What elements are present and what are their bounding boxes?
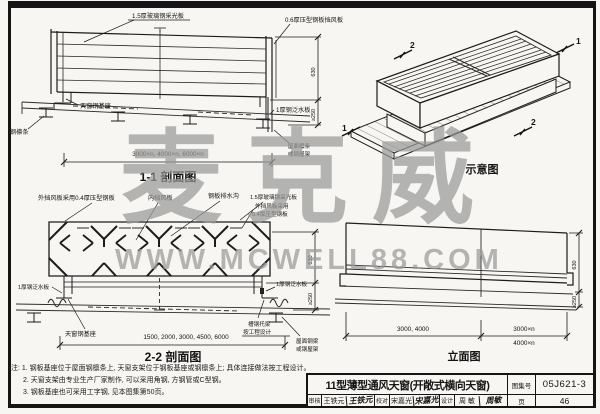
s22-label-joist-2: 按工程设计 (243, 328, 271, 336)
s11-label-flashing: 1厚钢泛水板 (276, 106, 310, 114)
s22-label-joist-1: 槽钢托梁 (248, 320, 271, 328)
s11-panels (57, 28, 276, 99)
review-name: 王铁元 (321, 395, 346, 406)
design-label: 设计 (439, 395, 454, 406)
note-line-1: 注: 1. 钢板基座位于屋面钢檩条上, 天窗支架位于钢板基座或钢檩条上; 具体连… (11, 363, 323, 375)
elev-dim-left-span: 3000, 4000 (397, 326, 429, 333)
elevation-drawing: 630 ≥250 3000, 4000 3000×n 4000×n 立面图 (333, 210, 598, 365)
s11-dim-height: 630 (311, 67, 317, 76)
page-number: 46 (535, 395, 593, 406)
s22-label-inner-board: 内挡风板 (148, 194, 173, 202)
s11-skylight-box (51, 29, 272, 99)
section-2-2-drawing: 外挡风板采用0.4厚压型钢板 内挡风板 钢板排水沟 1.5厚玻璃钢采光板 外挡风… (8, 186, 338, 366)
review-signature: 王铁元 (346, 394, 375, 407)
s11-label-base: 天窗钢基座 (80, 102, 111, 110)
elev-dim-height: 630 (572, 260, 578, 269)
s22-purlin-ibeams (27, 313, 283, 322)
title-block-row-2: 审核 王铁元 王铁元 校对 宋嘉光 宋嘉光 设计 周 敏 周敏 页 46 (308, 395, 593, 406)
s22-dim-span: 1500, 2000, 3000, 4500, 6000 (143, 334, 229, 341)
s22-label-panel: 1.5厚玻璃钢采光板 (250, 193, 297, 201)
iso-mark-1-bottom: 1 (342, 123, 347, 133)
s11-label-panel: 1.5厚玻璃钢采光板 (132, 12, 184, 20)
iso-mark-2-bottom: 2 (531, 117, 536, 127)
iso-title: 示意图 (465, 162, 499, 176)
s11-title: 1-1 剖面图 (140, 169, 197, 184)
design-signature: 周敏 (479, 394, 508, 407)
check-signature: 宋嘉光 (413, 394, 440, 407)
check-name: 宋嘉光 (389, 395, 413, 406)
elev-dim-curb: ≥250 (572, 296, 578, 308)
s11-dim-curb: ≥250 (311, 109, 317, 121)
atlas-number-label: 图集号 (507, 375, 535, 394)
review-label: 审核 (308, 395, 321, 406)
s11-leaders (28, 20, 290, 143)
drawing-title: 11型薄型通风天窗(开敞式横向天窗) (308, 375, 507, 394)
s22-label-flashing-right: 1厚钢泛水板 (276, 280, 307, 288)
s11-label-roof-2: 或钢屋架 (288, 150, 311, 158)
iso-mark-2-top: 2 (410, 40, 415, 50)
s22-title: 2-2 剖面图 (145, 349, 202, 364)
s22-leaders (52, 201, 300, 336)
s22-label-outer-right-2: 0.4厚压型钢板 (252, 210, 288, 218)
elev-dim-right-span-2: 4000×n (513, 340, 535, 347)
elev-lines (335, 229, 576, 310)
atlas-number-value: 05J621-3 (535, 375, 593, 394)
design-name: 周 敏 (454, 395, 479, 406)
s22-curbs-flashing (48, 276, 288, 307)
s22-gutter-funnels (91, 226, 228, 276)
s22-dim-curb: ≥250 (308, 293, 314, 305)
s11-label-roof-1: 屋面檩条 (288, 142, 311, 150)
page-label: 页 (507, 395, 535, 406)
s22-dim-height: 630 (308, 255, 314, 264)
section-1-1-drawing: 1.5厚玻璃钢采光板 0.6厚压型钢板挡风板 天窗钢基座 钢檩条 1厚钢泛水板 … (8, 4, 368, 189)
drawing-sheet: 1.5厚玻璃钢采光板 0.6厚压型钢板挡风板 天窗钢基座 钢檩条 1厚钢泛水板 … (0, 0, 600, 414)
title-block: 11型薄型通风天窗(开敞式横向天窗) 图集号 05J621-3 审核 王铁元 王… (306, 373, 595, 408)
elev-dim-right-span-1: 3000×n (513, 326, 535, 333)
check-label: 校对 (374, 395, 389, 406)
s22-frame-box (49, 222, 270, 276)
s11-dim-span: 3000×n, 4000×n, 6000×n (132, 151, 204, 158)
s11-label-purlin: 钢檩条 (10, 128, 29, 136)
isometric-schematic-drawing: 2 1 1 2 示意图 (330, 12, 595, 177)
elev-title: 立面图 (448, 349, 481, 363)
general-notes: 注: 1. 钢板基座位于屋面钢檩条上, 天窗支架位于钢板基座或钢檩条上; 具体连… (11, 363, 323, 399)
s11-base-pedestals (54, 92, 272, 132)
s22-label-base: 天窗钢基座 (65, 330, 96, 338)
s22-label-outer-right-1: 外挡风板采用 (255, 202, 289, 210)
elev-span-dim (343, 312, 570, 341)
iso-mark-1-top: 1 (576, 36, 581, 46)
note-line-3: 3. 钢板基座也可采用工字钢, 见本图集第50页。 (11, 387, 323, 399)
s22-label-flashing-left: 1厚钢泛水板 (18, 283, 49, 291)
s22-label-gutter: 钢板排水沟 (208, 192, 239, 200)
title-block-row-1: 11型薄型通风天窗(开敞式横向天窗) 图集号 05J621-3 (308, 375, 593, 395)
s22-label-roof-2: 或钢屋架 (296, 345, 319, 353)
s22-label-outer-board: 外挡风板采用0.4厚压型钢板 (38, 194, 115, 202)
s22-label-roof-1: 屋面钢梁 (296, 337, 319, 345)
note-line-2: 2. 天窗支架由专业生产厂家制作, 可以采用角钢, 方钢管或C型钢。 (11, 375, 323, 387)
